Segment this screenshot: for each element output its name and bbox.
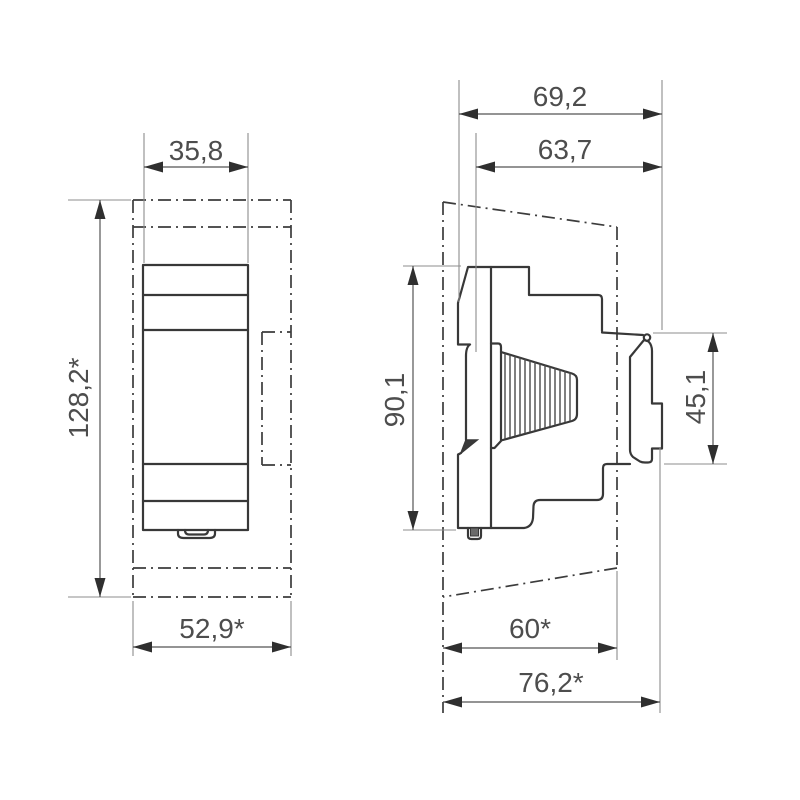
drawing-canvas: 35,8 128,2* 52,9* [0, 0, 800, 800]
dim-label-overall-depth: 69,2 [533, 81, 588, 112]
dim-front-depth: 63,7 [476, 133, 662, 352]
din-spring-hook [461, 440, 477, 453]
dim-overall-depth: 69,2 [459, 80, 662, 330]
dim-module-width: 35,8 [144, 133, 248, 263]
dim-label-overall-width: 52,9* [179, 613, 244, 644]
clip-pivot [644, 334, 650, 340]
grip-ribs [505, 353, 570, 439]
dim-label-front-depth: 63,7 [538, 134, 593, 165]
dim-label-total-depth: 76,2* [518, 667, 583, 698]
dim-front-panel-height: 45,1 [653, 333, 727, 464]
dim-recess-depth: 60* [443, 571, 617, 660]
front-module-body [143, 265, 248, 538]
technical-drawing: 35,8 128,2* 52,9* [0, 0, 800, 800]
dim-label-front-panel-height: 45,1 [680, 370, 711, 425]
front-view: 35,8 128,2* 52,9* [63, 133, 291, 656]
clip-flap [630, 340, 662, 463]
side-view: 69,2 63,7 90,1 45,1 [379, 80, 727, 713]
front-side-pocket-outline [262, 332, 291, 465]
dim-overall-height: 128,2* [63, 200, 131, 597]
dim-label-body-height: 90,1 [379, 373, 410, 428]
dim-label-recess-depth: 60* [509, 613, 551, 644]
dim-label-overall-height: 128,2* [63, 357, 94, 438]
dim-overall-width: 52,9* [133, 601, 291, 656]
dim-label-module-width: 35,8 [169, 135, 224, 166]
dim-body-height: 90,1 [379, 266, 461, 530]
side-module-body [458, 267, 662, 539]
dim-total-depth: 76,2* [443, 448, 660, 713]
foot-tab-inner [471, 528, 479, 536]
